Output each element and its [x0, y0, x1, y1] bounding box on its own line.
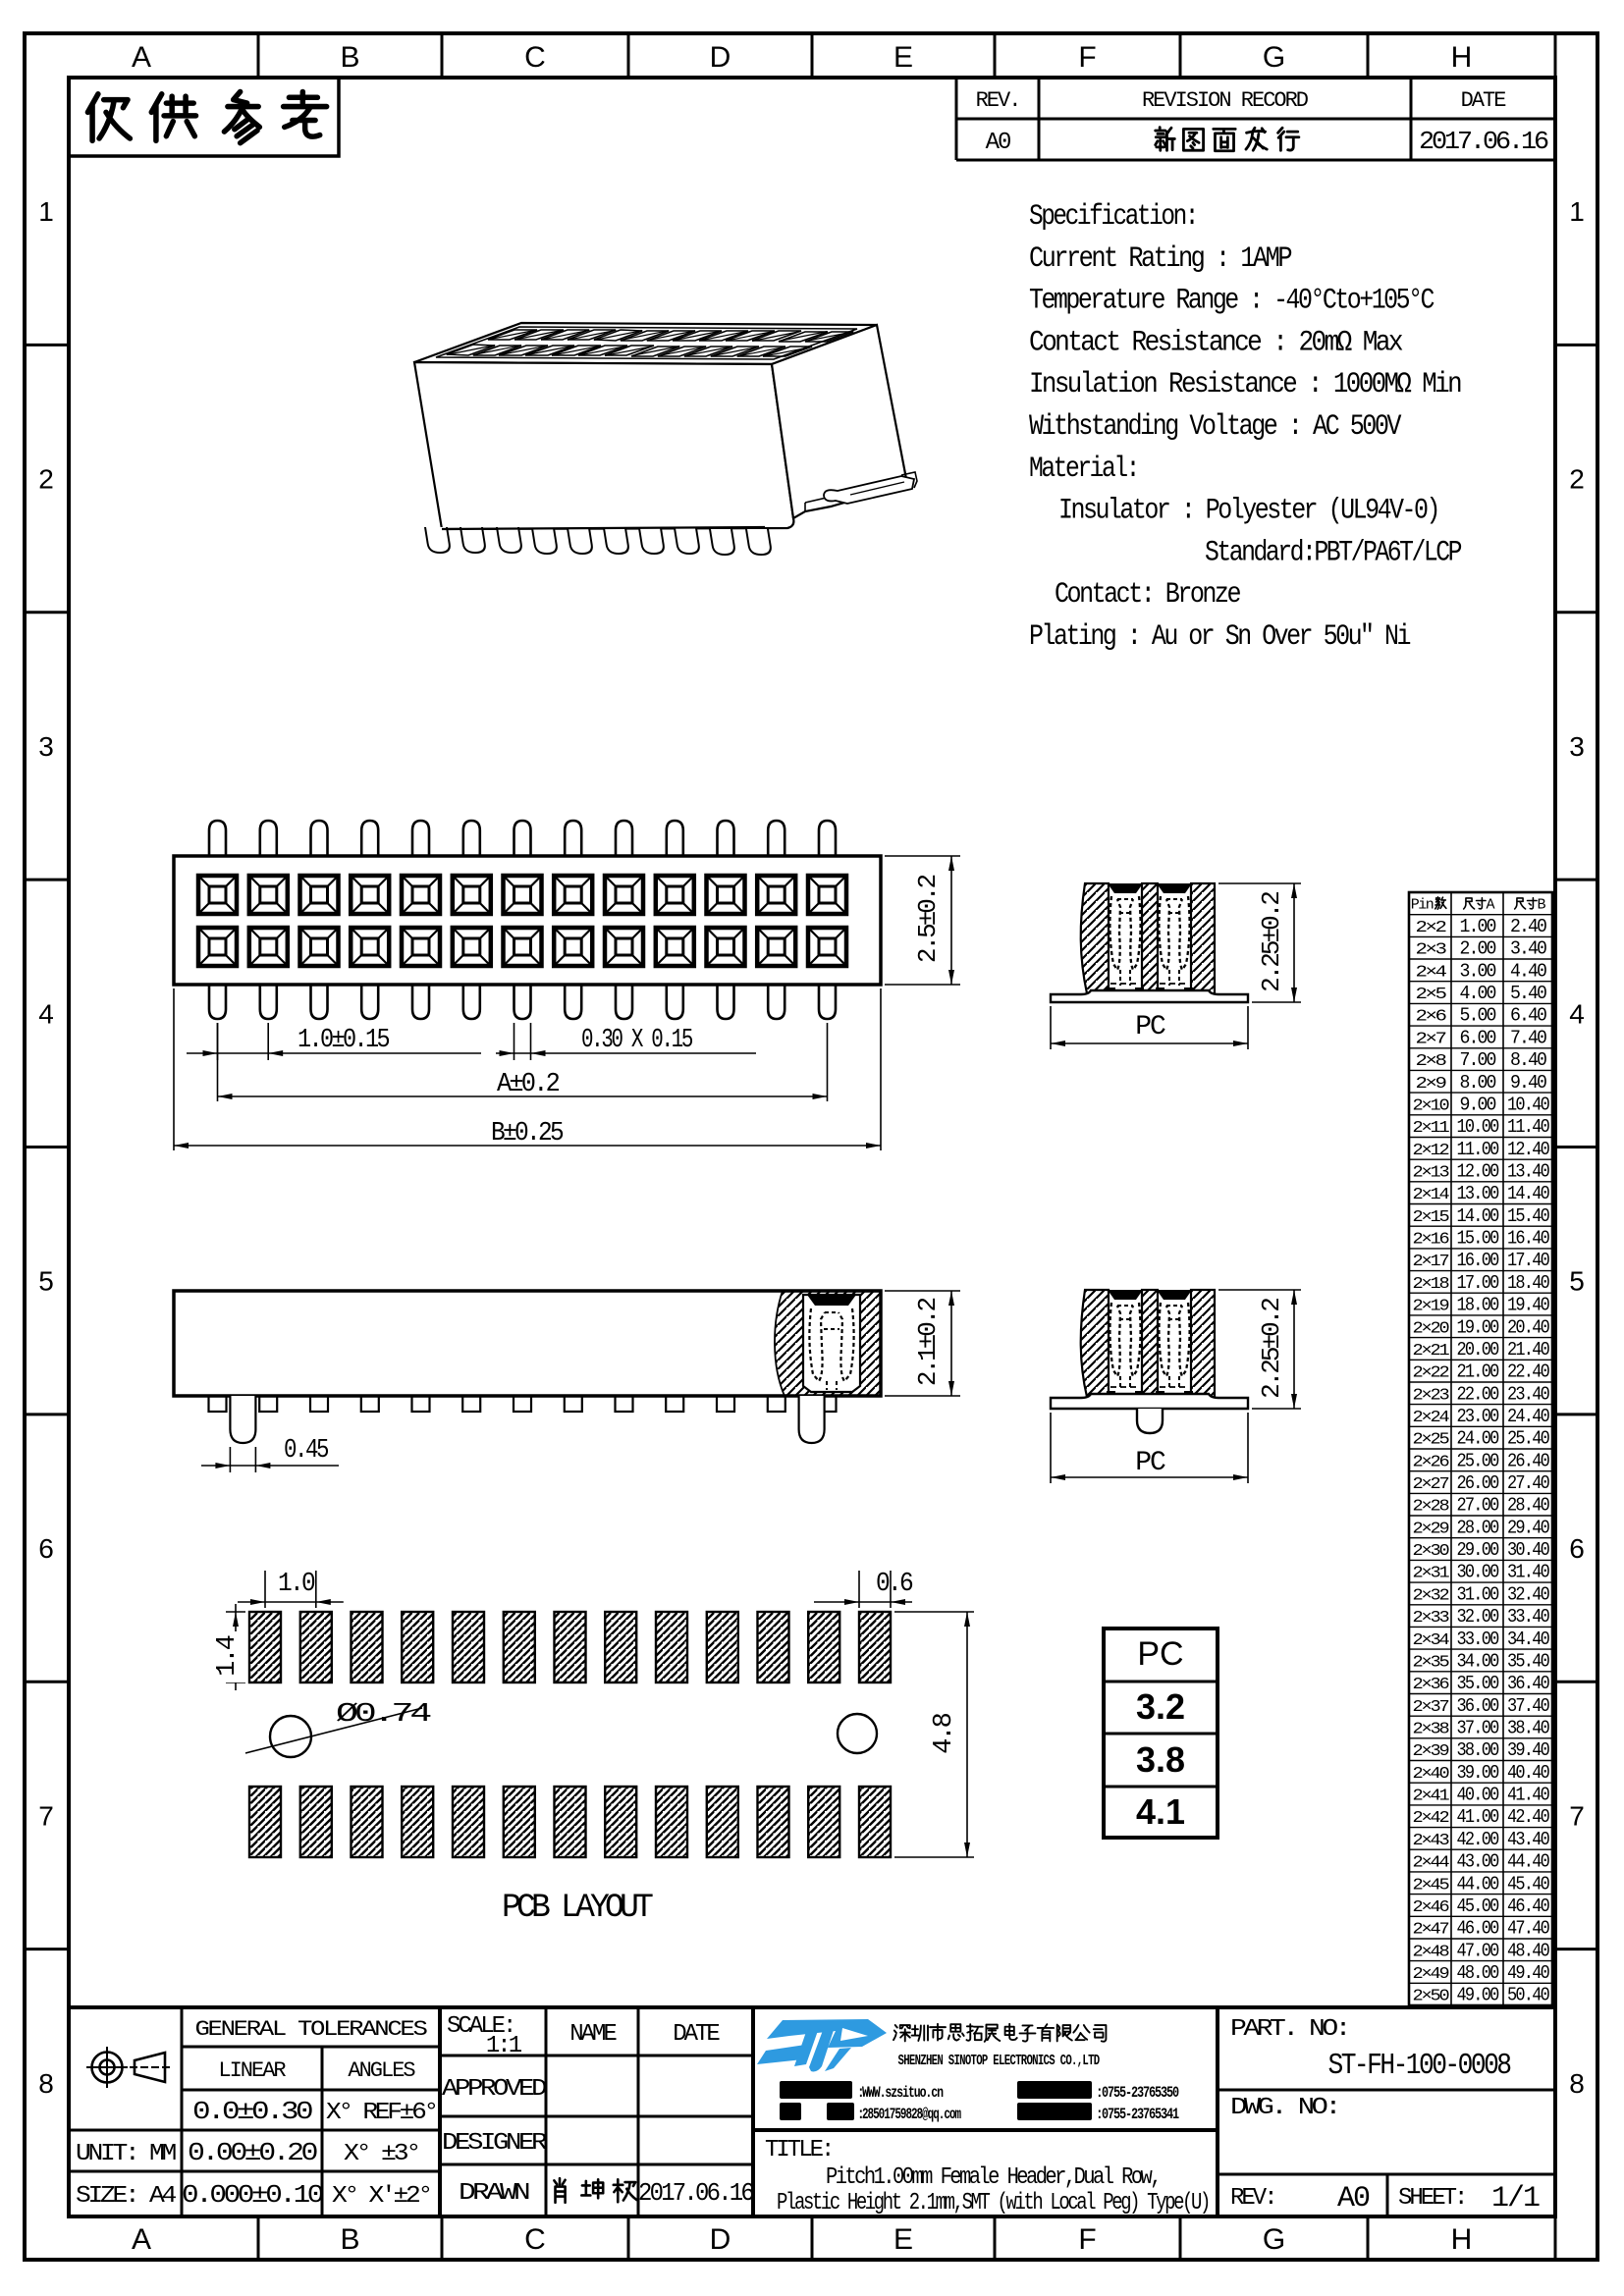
svg-text:Specification:: Specification:	[1029, 200, 1197, 234]
svg-text:NAME: NAME	[569, 2021, 617, 2048]
svg-text:24.00: 24.00	[1457, 1428, 1499, 1450]
svg-text:2×25: 2×25	[1413, 1431, 1450, 1450]
svg-text:SIZE: A4: SIZE: A4	[76, 2183, 177, 2210]
svg-text:DESIGNER: DESIGNER	[442, 2130, 547, 2157]
svg-text:A: A	[1486, 896, 1494, 913]
svg-text:2×39: 2×39	[1413, 1742, 1450, 1761]
svg-text:REV:: REV:	[1230, 2185, 1275, 2212]
svg-text:18.00: 18.00	[1457, 1295, 1499, 1316]
svg-text:30.40: 30.40	[1507, 1539, 1549, 1561]
svg-text:2×8: 2×8	[1416, 1052, 1447, 1071]
svg-text:2×20: 2×20	[1413, 1319, 1450, 1338]
svg-text:50.40: 50.40	[1507, 1985, 1549, 2006]
svg-text:Insulation Resistance : 1000MΩ: Insulation Resistance : 1000MΩ Min	[1029, 368, 1461, 401]
svg-text:2×12: 2×12	[1413, 1142, 1449, 1160]
svg-text:11.40: 11.40	[1507, 1116, 1549, 1138]
svg-text:0.6: 0.6	[876, 1570, 913, 1599]
svg-text:B±0.25: B±0.25	[491, 1119, 564, 1148]
svg-text:A0: A0	[986, 130, 1010, 156]
svg-text:2×42: 2×42	[1413, 1809, 1449, 1828]
svg-text:2×34: 2×34	[1413, 1631, 1450, 1650]
svg-text:8.40: 8.40	[1510, 1049, 1547, 1071]
svg-text:0.45: 0.45	[284, 1436, 328, 1466]
svg-text:41.40: 41.40	[1507, 1785, 1549, 1806]
svg-text:DWG. NO:: DWG. NO:	[1230, 2095, 1338, 2121]
svg-text:45.00: 45.00	[1457, 1896, 1499, 1917]
svg-text:3.40: 3.40	[1510, 938, 1547, 960]
svg-text:LINEAR: LINEAR	[218, 2058, 286, 2083]
svg-text:Pitch1.00mm Female Header,Dual: Pitch1.00mm Female Header,Dual Row,	[826, 2164, 1160, 2191]
svg-text:SHEET:: SHEET:	[1398, 2185, 1465, 2212]
svg-text:46.00: 46.00	[1457, 1918, 1499, 1940]
svg-text:8: 8	[38, 2068, 54, 2099]
svg-text:27.40: 27.40	[1507, 1472, 1549, 1494]
svg-text:20.40: 20.40	[1507, 1316, 1549, 1338]
svg-text:2×50: 2×50	[1413, 1988, 1450, 2006]
svg-text:ST-FH-100-0008: ST-FH-100-0008	[1328, 2049, 1511, 2083]
svg-text:6: 6	[38, 1533, 54, 1564]
svg-text:1:1: 1:1	[486, 2033, 522, 2059]
svg-text:5.00: 5.00	[1460, 1005, 1497, 1027]
svg-text:6.00: 6.00	[1460, 1027, 1497, 1048]
svg-text:2: 2	[1569, 464, 1585, 495]
svg-text:26.00: 26.00	[1457, 1472, 1499, 1494]
svg-text:2×32: 2×32	[1413, 1586, 1449, 1605]
svg-text:28.40: 28.40	[1507, 1495, 1549, 1517]
svg-text:X° ±3°: X° ±3°	[344, 2141, 418, 2167]
svg-text:2×45: 2×45	[1413, 1876, 1450, 1895]
svg-text:Contact Resistance : 20mΩ Max: Contact Resistance : 20mΩ Max	[1029, 326, 1403, 359]
svg-text:3: 3	[1569, 731, 1585, 762]
svg-text:2×13: 2×13	[1413, 1164, 1450, 1183]
svg-text:9.00: 9.00	[1460, 1094, 1497, 1115]
svg-text:21.40: 21.40	[1507, 1339, 1549, 1361]
svg-text:Withstanding Voltage : AC 500V: Withstanding Voltage : AC 500V	[1029, 410, 1402, 444]
svg-text:REVISION RECORD: REVISION RECORD	[1142, 88, 1309, 113]
svg-text:36.40: 36.40	[1507, 1673, 1549, 1694]
svg-text:2×9: 2×9	[1416, 1075, 1447, 1094]
svg-text:12.40: 12.40	[1507, 1139, 1549, 1160]
svg-text:0.00±0.20: 0.00±0.20	[188, 2138, 317, 2167]
svg-text:2×4: 2×4	[1416, 963, 1447, 982]
svg-text:33.00: 33.00	[1457, 1629, 1499, 1650]
svg-text:2.1±0.2: 2.1±0.2	[913, 1298, 943, 1386]
svg-text:2×16: 2×16	[1413, 1231, 1450, 1250]
svg-text:2×7: 2×7	[1416, 1030, 1446, 1048]
svg-text:2: 2	[38, 464, 54, 495]
svg-text:TITLE:: TITLE:	[765, 2137, 832, 2163]
svg-text:12.00: 12.00	[1457, 1161, 1499, 1183]
svg-text:2×26: 2×26	[1413, 1453, 1450, 1471]
svg-text:2×44: 2×44	[1413, 1854, 1450, 1873]
svg-text:REV.: REV.	[976, 88, 1020, 113]
svg-text:8: 8	[1569, 2068, 1585, 2099]
svg-text:15.00: 15.00	[1457, 1228, 1499, 1250]
svg-text:Plating : Au or Sn Over 50u″ N: Plating : Au or Sn Over 50u″ Ni	[1029, 620, 1411, 654]
svg-text:4.00: 4.00	[1460, 983, 1497, 1004]
svg-text:1.00: 1.00	[1460, 916, 1497, 937]
svg-text:22.00: 22.00	[1457, 1383, 1499, 1405]
svg-text:45.40: 45.40	[1507, 1873, 1549, 1895]
svg-text:23.00: 23.00	[1457, 1406, 1499, 1427]
svg-text:A±0.2: A±0.2	[497, 1070, 560, 1099]
svg-text:PC: PC	[1135, 1448, 1165, 1478]
svg-text:APPROVED: APPROVED	[442, 2076, 547, 2103]
svg-text:2×48: 2×48	[1413, 1943, 1450, 1961]
svg-text:Material:: Material:	[1029, 453, 1138, 486]
svg-text:C: C	[524, 41, 546, 74]
svg-text:20.00: 20.00	[1457, 1339, 1499, 1361]
svg-text:2×17: 2×17	[1413, 1253, 1449, 1271]
svg-text:DRAWN: DRAWN	[459, 2180, 529, 2207]
svg-text:4.1: 4.1	[1136, 1791, 1185, 1832]
svg-text:2×14: 2×14	[1413, 1186, 1450, 1204]
svg-text:2×29: 2×29	[1413, 1520, 1450, 1538]
svg-text:32.40: 32.40	[1507, 1583, 1549, 1605]
svg-text:DATE: DATE	[673, 2021, 720, 2048]
svg-text:5: 5	[38, 1266, 54, 1297]
svg-text:33.40: 33.40	[1507, 1606, 1549, 1628]
svg-text:0.30 X 0.15: 0.30 X 0.15	[581, 1026, 692, 1055]
svg-text:42.40: 42.40	[1507, 1806, 1549, 1828]
svg-text:3: 3	[38, 731, 54, 762]
svg-text:2×3: 2×3	[1416, 941, 1447, 960]
svg-text:PC: PC	[1135, 1012, 1165, 1042]
svg-text:25.40: 25.40	[1507, 1428, 1549, 1450]
svg-text:2017.06.16: 2017.06.16	[638, 2178, 753, 2208]
svg-text:A0: A0	[1337, 2182, 1370, 2216]
svg-text:7: 7	[38, 1800, 54, 1831]
svg-text:24.40: 24.40	[1507, 1406, 1549, 1427]
svg-text:47.40: 47.40	[1507, 1918, 1549, 1940]
svg-text:15.40: 15.40	[1507, 1205, 1549, 1227]
svg-text:Plastic Height 2.1mm,SMT (with: Plastic Height 2.1mm,SMT (with Local Peg…	[777, 2190, 1209, 2216]
svg-text:Contact: Bronze: Contact: Bronze	[1055, 578, 1241, 612]
svg-text:14.00: 14.00	[1457, 1205, 1499, 1227]
svg-text:17.00: 17.00	[1457, 1272, 1499, 1294]
svg-text:2×15: 2×15	[1413, 1208, 1450, 1227]
svg-text:2×11: 2×11	[1413, 1119, 1450, 1138]
svg-text:0755-23765350: 0755-23765350	[1102, 2084, 1179, 2102]
svg-text:14.40: 14.40	[1507, 1183, 1549, 1204]
svg-text:31.00: 31.00	[1457, 1583, 1499, 1605]
svg-text:27.00: 27.00	[1457, 1495, 1499, 1517]
svg-text:22.40: 22.40	[1507, 1362, 1549, 1383]
svg-text:7.00: 7.00	[1460, 1049, 1497, 1071]
svg-text:44.00: 44.00	[1457, 1873, 1499, 1895]
svg-text:35.00: 35.00	[1457, 1673, 1499, 1694]
svg-text:36.00: 36.00	[1457, 1695, 1499, 1717]
svg-text:3.00: 3.00	[1460, 960, 1497, 982]
svg-text:C: C	[524, 2223, 546, 2256]
svg-text:F: F	[1078, 41, 1096, 74]
svg-text:1/1: 1/1	[1491, 2182, 1540, 2216]
svg-text:4.8: 4.8	[930, 1713, 959, 1753]
svg-text:2×24: 2×24	[1413, 1409, 1450, 1427]
svg-text:2×31: 2×31	[1413, 1565, 1450, 1583]
svg-text:2×28: 2×28	[1413, 1498, 1450, 1517]
svg-text:2×30: 2×30	[1413, 1542, 1450, 1561]
svg-text:7: 7	[1569, 1800, 1585, 1831]
svg-text:X° REF±6°: X° REF±6°	[326, 2100, 436, 2126]
svg-text:3.2: 3.2	[1136, 1686, 1185, 1727]
svg-text:X° X'±2°: X° X'±2°	[332, 2183, 430, 2210]
svg-text:29.40: 29.40	[1507, 1517, 1549, 1538]
svg-text:B: B	[1537, 896, 1545, 913]
svg-text:8.00: 8.00	[1460, 1072, 1497, 1094]
svg-text:Ø0.74: Ø0.74	[336, 1700, 431, 1730]
svg-text:E: E	[893, 41, 913, 74]
svg-text:PART. NO:: PART. NO:	[1230, 2016, 1348, 2043]
svg-text:2.25±0.2: 2.25±0.2	[1257, 892, 1286, 992]
svg-text:2.40: 2.40	[1510, 916, 1547, 937]
svg-text:23.40: 23.40	[1507, 1383, 1549, 1405]
svg-text:Current Rating : 1AMP: Current Rating : 1AMP	[1029, 242, 1292, 276]
svg-text:43.00: 43.00	[1457, 1851, 1499, 1873]
svg-text:48.40: 48.40	[1507, 1940, 1549, 1961]
svg-text:38.40: 38.40	[1507, 1718, 1549, 1739]
svg-text:2×18: 2×18	[1413, 1275, 1450, 1294]
svg-text:6: 6	[1569, 1533, 1585, 1564]
svg-text:DATE: DATE	[1461, 88, 1507, 113]
svg-text:30.00: 30.00	[1457, 1562, 1499, 1583]
svg-text:GENERAL TOLERANCES: GENERAL TOLERANCES	[195, 2017, 428, 2042]
svg-text:1.0±0.15: 1.0±0.15	[298, 1026, 390, 1055]
svg-text:17.40: 17.40	[1507, 1250, 1549, 1271]
svg-text:H: H	[1451, 41, 1473, 74]
svg-text:10.40: 10.40	[1507, 1094, 1549, 1115]
svg-text:5.40: 5.40	[1510, 983, 1547, 1004]
svg-text:2×38: 2×38	[1413, 1721, 1450, 1739]
svg-text:48.00: 48.00	[1457, 1962, 1499, 1984]
svg-text:42.00: 42.00	[1457, 1829, 1499, 1850]
svg-text:37.40: 37.40	[1507, 1695, 1549, 1717]
svg-text:16.00: 16.00	[1457, 1250, 1499, 1271]
svg-text:19.40: 19.40	[1507, 1295, 1549, 1316]
svg-text:2×5: 2×5	[1416, 986, 1447, 1004]
svg-text:D: D	[710, 2223, 731, 2256]
svg-text:2.00: 2.00	[1460, 938, 1497, 960]
svg-text:40.40: 40.40	[1507, 1762, 1549, 1784]
svg-text:WWW.szsituo.cn: WWW.szsituo.cn	[862, 2084, 944, 2102]
svg-text:UNIT: MM: UNIT: MM	[76, 2141, 176, 2167]
svg-text:6.40: 6.40	[1510, 1005, 1547, 1027]
svg-text:ANGLES: ANGLES	[348, 2058, 415, 2083]
svg-text:2×37: 2×37	[1413, 1698, 1449, 1717]
svg-text:32.00: 32.00	[1457, 1606, 1499, 1628]
svg-text:39.40: 39.40	[1507, 1739, 1549, 1761]
svg-text:46.40: 46.40	[1507, 1896, 1549, 1917]
svg-text:25.00: 25.00	[1457, 1450, 1499, 1471]
svg-text:B: B	[340, 2223, 359, 2256]
svg-text:0.0±0.30: 0.0±0.30	[192, 2097, 312, 2126]
svg-text:44.40: 44.40	[1507, 1851, 1549, 1873]
svg-text:2.25±0.2: 2.25±0.2	[1257, 1299, 1286, 1399]
svg-text:2×41: 2×41	[1413, 1788, 1450, 1806]
svg-text:3.8: 3.8	[1136, 1739, 1185, 1780]
svg-text:2×21: 2×21	[1413, 1342, 1450, 1361]
svg-text:19.00: 19.00	[1457, 1316, 1499, 1338]
svg-text:41.00: 41.00	[1457, 1806, 1499, 1828]
svg-text:1.0: 1.0	[278, 1570, 315, 1599]
svg-text:D: D	[710, 41, 731, 74]
svg-text:1: 1	[1569, 196, 1585, 227]
svg-text:2×6: 2×6	[1416, 1008, 1447, 1027]
svg-text:21.00: 21.00	[1457, 1362, 1499, 1383]
svg-text:H: H	[1451, 2223, 1473, 2256]
svg-text:F: F	[1078, 2223, 1096, 2256]
svg-text:29.00: 29.00	[1457, 1539, 1499, 1561]
svg-text:5: 5	[1569, 1266, 1585, 1297]
svg-text:31.40: 31.40	[1507, 1562, 1549, 1583]
svg-text:38.00: 38.00	[1457, 1739, 1499, 1761]
svg-text:2×22: 2×22	[1413, 1364, 1449, 1383]
svg-text:2×36: 2×36	[1413, 1676, 1450, 1694]
svg-text:Pin: Pin	[1411, 896, 1434, 913]
svg-text:35.40: 35.40	[1507, 1650, 1549, 1672]
svg-text:16.40: 16.40	[1507, 1228, 1549, 1250]
svg-text:0.000±0.10: 0.000±0.10	[182, 2180, 323, 2210]
svg-text:1: 1	[38, 196, 54, 227]
svg-text:B: B	[340, 41, 359, 74]
svg-text:47.00: 47.00	[1457, 1940, 1499, 1961]
svg-text:PC: PC	[1137, 1635, 1183, 1673]
svg-text:Standard:PBT/PA6T/LCP: Standard:PBT/PA6T/LCP	[1205, 536, 1462, 569]
svg-text:4.40: 4.40	[1510, 960, 1547, 982]
svg-text:Insulator : Polyester (UL94V-0: Insulator : Polyester (UL94V-0)	[1058, 495, 1438, 528]
svg-text:2×27: 2×27	[1413, 1475, 1449, 1494]
svg-text:40.00: 40.00	[1457, 1785, 1499, 1806]
svg-text:4: 4	[1569, 998, 1585, 1029]
svg-text:SHENZHEN SINOTOP ELECTRONICS C: SHENZHEN SINOTOP ELECTRONICS CO.,LTD	[898, 2053, 1101, 2069]
svg-text:2×35: 2×35	[1413, 1653, 1450, 1672]
svg-text:1.4: 1.4	[213, 1635, 243, 1676]
svg-text:A: A	[132, 41, 151, 74]
svg-text:34.00: 34.00	[1457, 1650, 1499, 1672]
svg-text:7.40: 7.40	[1510, 1027, 1547, 1048]
svg-text:PCB LAYOUT: PCB LAYOUT	[502, 1890, 653, 1927]
svg-text:10.00: 10.00	[1457, 1116, 1499, 1138]
svg-text:2×23: 2×23	[1413, 1386, 1450, 1405]
svg-text:2×43: 2×43	[1413, 1832, 1450, 1850]
svg-text:2×33: 2×33	[1413, 1609, 1450, 1628]
svg-text:2017.06.16: 2017.06.16	[1419, 127, 1547, 156]
svg-text:18.40: 18.40	[1507, 1272, 1549, 1294]
svg-text:28.00: 28.00	[1457, 1517, 1499, 1538]
svg-text:4: 4	[38, 998, 54, 1029]
svg-text:E: E	[893, 2223, 913, 2256]
svg-text:49.00: 49.00	[1457, 1985, 1499, 2006]
svg-text:2×2: 2×2	[1416, 919, 1446, 937]
svg-text:26.40: 26.40	[1507, 1450, 1549, 1471]
svg-text:37.00: 37.00	[1457, 1718, 1499, 1739]
svg-text:G: G	[1263, 2223, 1285, 2256]
svg-text:49.40: 49.40	[1507, 1962, 1549, 1984]
svg-text:2.5±0.2: 2.5±0.2	[913, 875, 943, 963]
svg-text:28501759828@qq.com: 28501759828@qq.com	[862, 2106, 961, 2123]
svg-text:A: A	[132, 2223, 151, 2256]
svg-text:2×46: 2×46	[1413, 1898, 1450, 1917]
svg-text:G: G	[1263, 41, 1285, 74]
svg-text:13.00: 13.00	[1457, 1183, 1499, 1204]
svg-text:Temperature Range : -40°Cto+10: Temperature Range : -40°Cto+105°C	[1029, 285, 1435, 318]
svg-text:11.00: 11.00	[1457, 1139, 1499, 1160]
svg-text:0755-23765341: 0755-23765341	[1102, 2106, 1179, 2123]
svg-text:34.40: 34.40	[1507, 1629, 1549, 1650]
svg-text:2×49: 2×49	[1413, 1965, 1450, 1984]
svg-text:13.40: 13.40	[1507, 1161, 1549, 1183]
svg-text:2×10: 2×10	[1413, 1096, 1450, 1115]
svg-text:43.40: 43.40	[1507, 1829, 1549, 1850]
svg-text:2×47: 2×47	[1413, 1921, 1449, 1940]
svg-text:9.40: 9.40	[1510, 1072, 1547, 1094]
svg-text:39.00: 39.00	[1457, 1762, 1499, 1784]
svg-text:2×40: 2×40	[1413, 1765, 1450, 1784]
svg-text:2×19: 2×19	[1413, 1298, 1450, 1316]
